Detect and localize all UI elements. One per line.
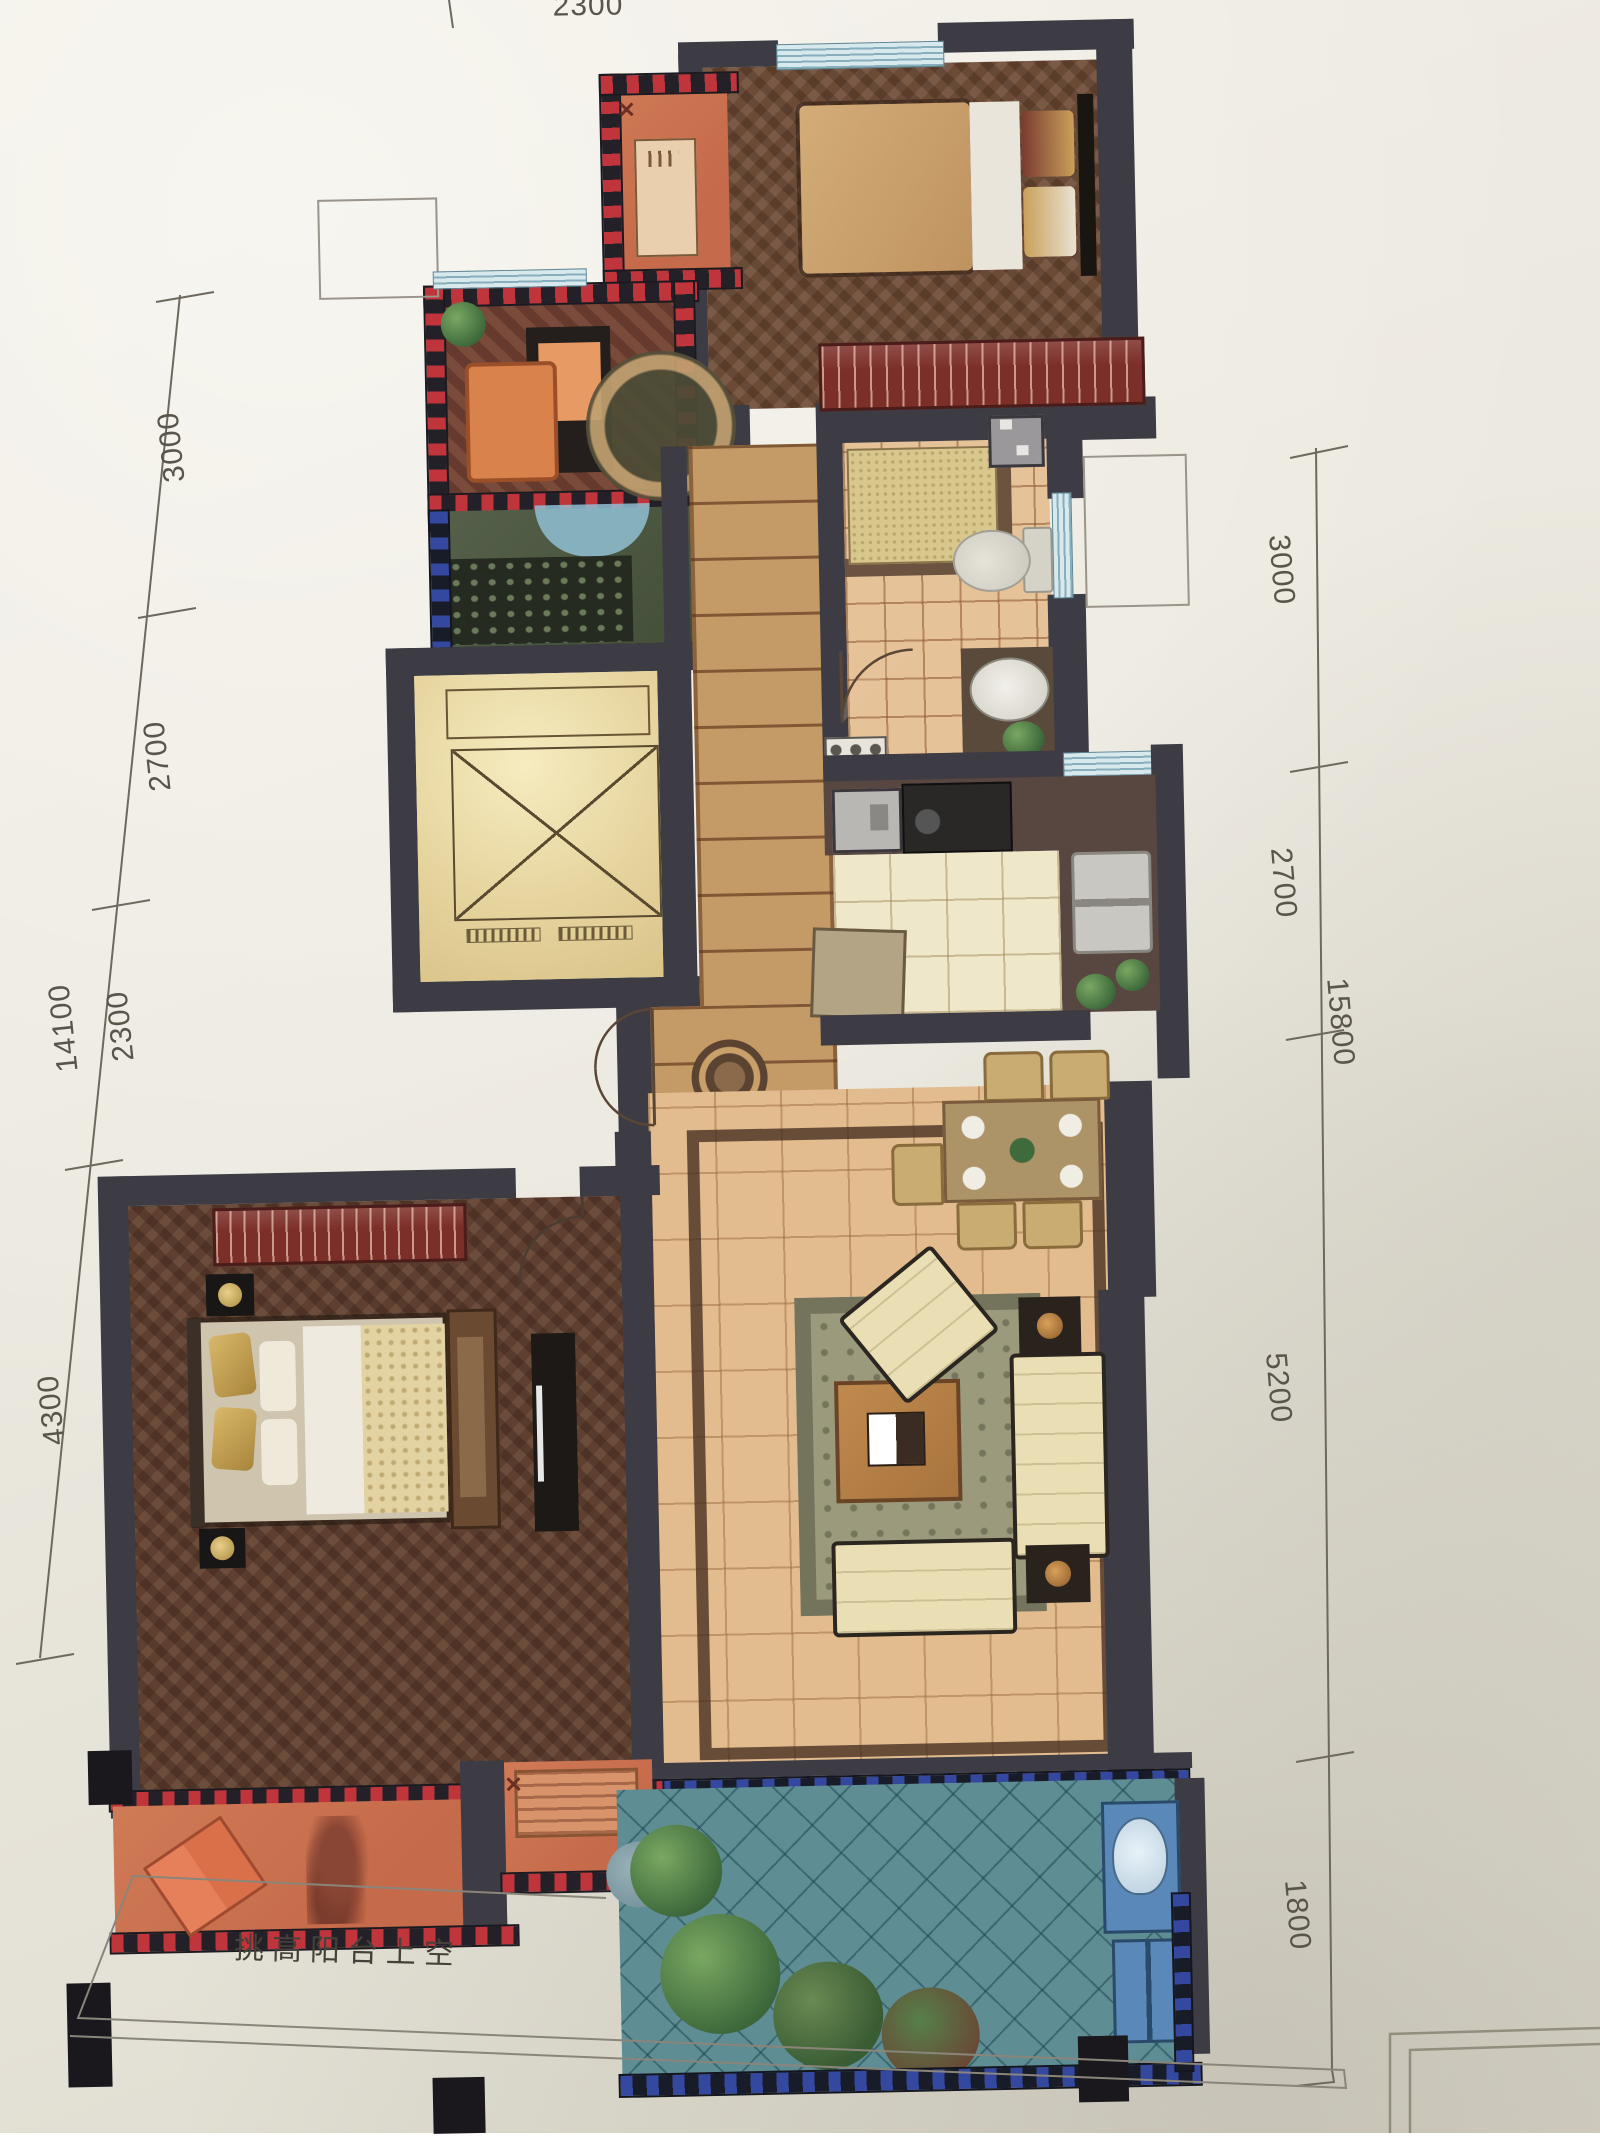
balcony-dashed-border [599, 71, 739, 96]
sofa-right [1009, 1352, 1109, 1560]
drain-x-icon: ✕ [617, 97, 636, 123]
dining-chair [891, 1143, 944, 1206]
pillow [259, 1341, 296, 1412]
pillow [1023, 186, 1076, 257]
plant-silhouette [305, 1815, 371, 1924]
floor-plan: ✕ [0, 0, 1600, 2150]
dim-right-total-15800: 15800 [1321, 977, 1359, 1068]
dining-chair [956, 1202, 1017, 1251]
elevator-lobby-outline [445, 685, 650, 739]
water-heater [988, 415, 1045, 468]
dining-chair [983, 1051, 1044, 1102]
corner-post [432, 2077, 485, 2134]
wall [1104, 1081, 1157, 1298]
wall [616, 1001, 653, 1150]
dim-right-2700: 2700 [1265, 846, 1301, 919]
dim-right-5200: 5200 [1260, 1351, 1296, 1424]
ac-unit-vents [648, 150, 678, 167]
ac-ledge-outline [1083, 454, 1190, 608]
pillow [211, 1407, 257, 1472]
kitchen-sink-double [1071, 851, 1153, 955]
kitchen-cart [810, 927, 907, 1020]
side-table [1018, 1296, 1081, 1355]
window-terrace [433, 268, 587, 289]
pillow [208, 1332, 257, 1399]
wall [820, 1010, 1091, 1046]
bed-secondary-sheet [969, 101, 1023, 270]
dining-table [942, 1098, 1102, 1203]
dim-left-2700: 2700 [139, 719, 176, 792]
terrace-armchair [465, 361, 559, 483]
window-bathroom [1051, 492, 1073, 598]
corner-post [66, 1983, 112, 2088]
water-heater-notch [1016, 445, 1028, 455]
bed-secondary-blanket [799, 102, 972, 274]
dim-right-3000: 3000 [1263, 533, 1299, 606]
wall [678, 40, 779, 68]
dim-left-3000: 3000 [153, 410, 190, 483]
bed-master-sheet [303, 1325, 365, 1514]
dim-top-2300: 2300 [552, 0, 623, 22]
balcony-garden-dashed-border [1171, 1892, 1195, 2072]
window-bedroom-top [776, 41, 945, 71]
wall [657, 666, 698, 1011]
side-table [1025, 1544, 1090, 1603]
gas-stove [901, 782, 1012, 854]
wall [1046, 434, 1083, 499]
dim-left-2300: 2300 [102, 989, 139, 1062]
bed-master-blanket [361, 1324, 449, 1514]
window-bay-outline [317, 197, 439, 299]
bed-bench-cushion [457, 1337, 486, 1498]
garden-dashed-border [428, 509, 453, 665]
door-threshold-hatch [558, 925, 632, 941]
pillow [261, 1419, 298, 1486]
corner-post [88, 1750, 133, 1805]
coffee-table-tray [867, 1411, 926, 1466]
dim-left-4300: 4300 [33, 1373, 70, 1446]
wardrobe-secondary [818, 337, 1145, 412]
corner-post [1078, 2035, 1129, 2102]
wall [660, 446, 691, 674]
wall [579, 1165, 660, 1197]
dining-chair [1022, 1200, 1083, 1249]
sofa-bottom [831, 1538, 1017, 1638]
water-heater-notch [1000, 419, 1012, 429]
corridor-floor [688, 443, 836, 1006]
garden-pebbles [447, 555, 634, 645]
door-threshold-hatch [466, 927, 540, 943]
balcony-void-label: 挑高阳台上空 [233, 1923, 462, 1973]
wall [460, 1760, 508, 1931]
fridge-door-line [870, 804, 889, 830]
nightstand-lamp [199, 1528, 246, 1569]
dining-chair [1049, 1050, 1110, 1101]
dim-right-1800: 1800 [1279, 1878, 1315, 1951]
nightstand-lamp [206, 1274, 255, 1317]
wardrobe-master [212, 1203, 467, 1266]
pillow [1021, 110, 1074, 177]
fridge [832, 788, 903, 853]
elevator-shaft-x [451, 745, 663, 921]
drain-x-icon: ✕ [504, 1772, 523, 1798]
balcony-sink [1111, 1816, 1169, 1895]
